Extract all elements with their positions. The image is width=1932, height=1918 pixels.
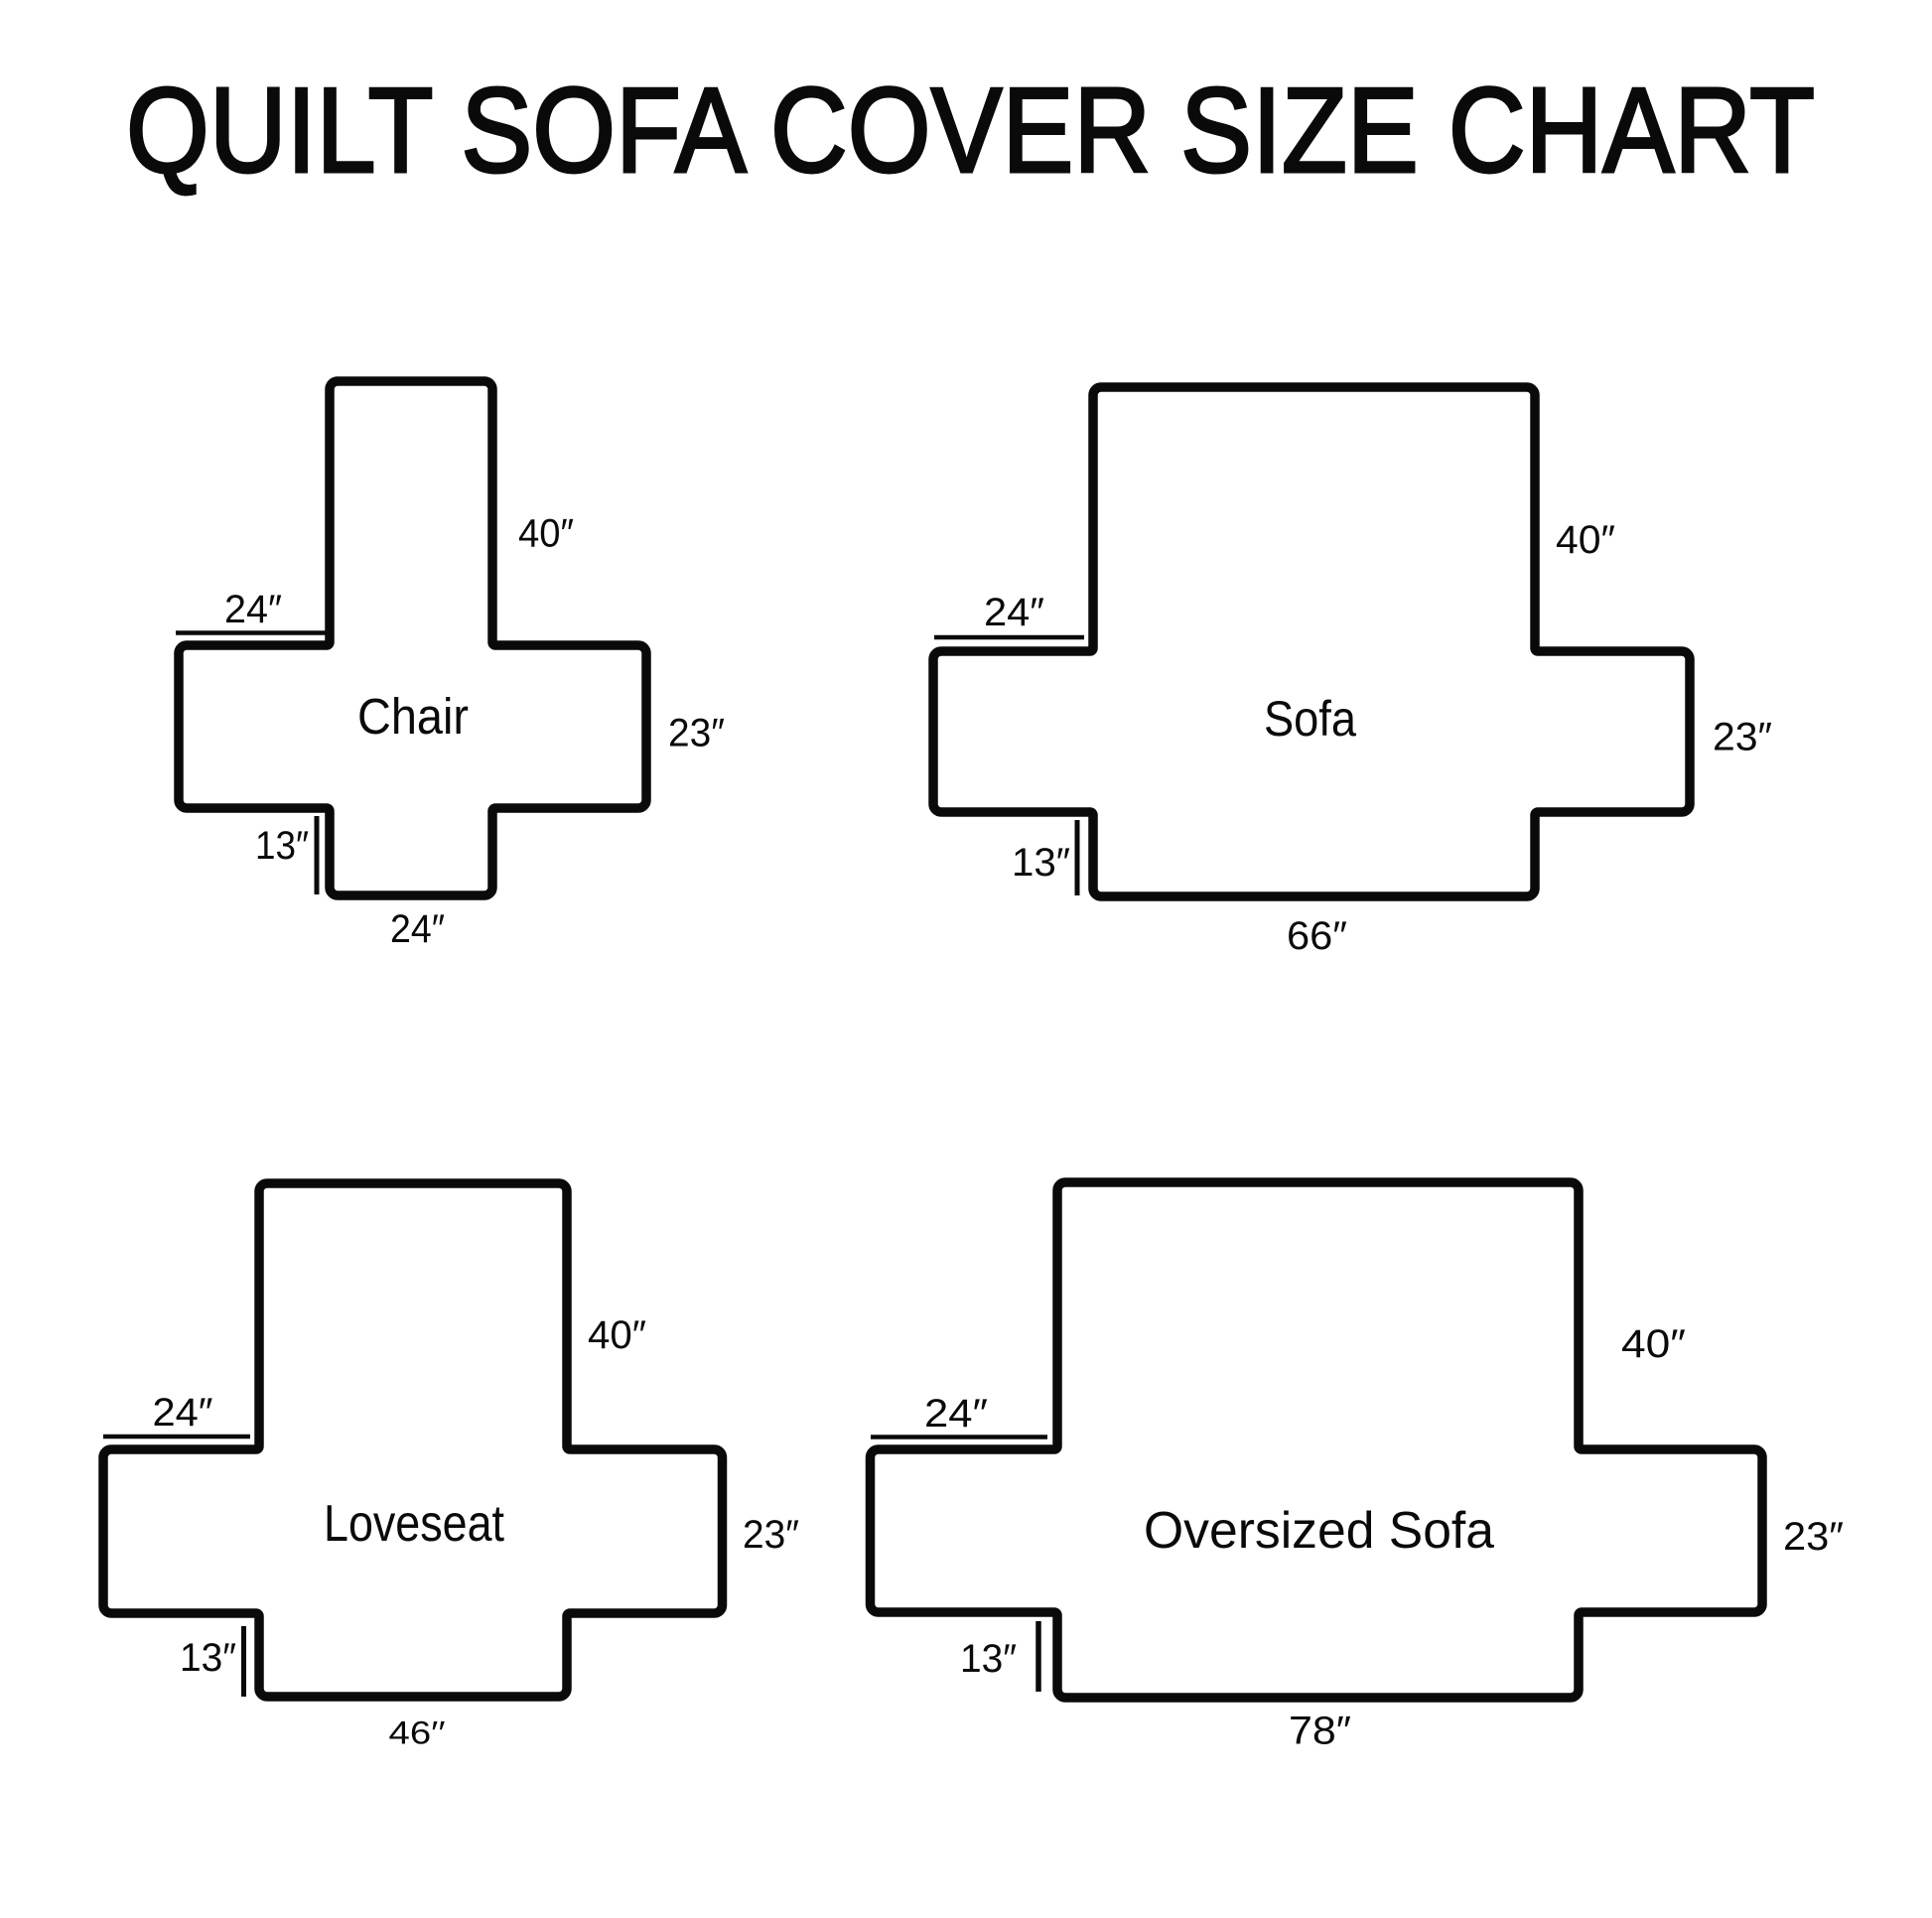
svg-text:24″: 24″ <box>984 591 1044 634</box>
svg-text:46′′: 46′′ <box>389 1715 446 1751</box>
svg-text:13″: 13″ <box>1012 841 1070 885</box>
svg-text:13″: 13″ <box>180 1636 236 1680</box>
svg-text:23″: 23″ <box>1783 1515 1844 1559</box>
svg-text:23″: 23″ <box>743 1513 799 1557</box>
svg-text:Loveseat: Loveseat <box>324 1495 504 1553</box>
svg-text:Sofa: Sofa <box>1264 691 1356 747</box>
svg-text:13″: 13″ <box>255 824 309 868</box>
svg-text:QUILT SOFA COVER SIZE CHART: QUILT SOFA COVER SIZE CHART <box>126 63 1815 198</box>
svg-text:66″: 66″ <box>1287 914 1347 958</box>
svg-text:24″: 24″ <box>153 1391 213 1435</box>
svg-text:23″: 23″ <box>1713 716 1772 759</box>
svg-text:24″: 24″ <box>224 588 282 631</box>
svg-text:13″: 13″ <box>960 1637 1017 1681</box>
svg-text:Chair: Chair <box>357 688 469 745</box>
svg-text:Oversized Sofa: Oversized Sofa <box>1144 1502 1494 1560</box>
svg-text:40″: 40″ <box>518 512 574 556</box>
svg-text:40″: 40″ <box>1556 518 1615 562</box>
svg-text:23″: 23″ <box>668 712 725 755</box>
svg-text:40″: 40″ <box>1621 1322 1686 1366</box>
svg-text:24″: 24″ <box>924 1392 988 1436</box>
svg-text:40″: 40″ <box>588 1313 646 1357</box>
svg-text:24″: 24″ <box>390 907 445 951</box>
svg-text:78″: 78″ <box>1289 1710 1351 1753</box>
